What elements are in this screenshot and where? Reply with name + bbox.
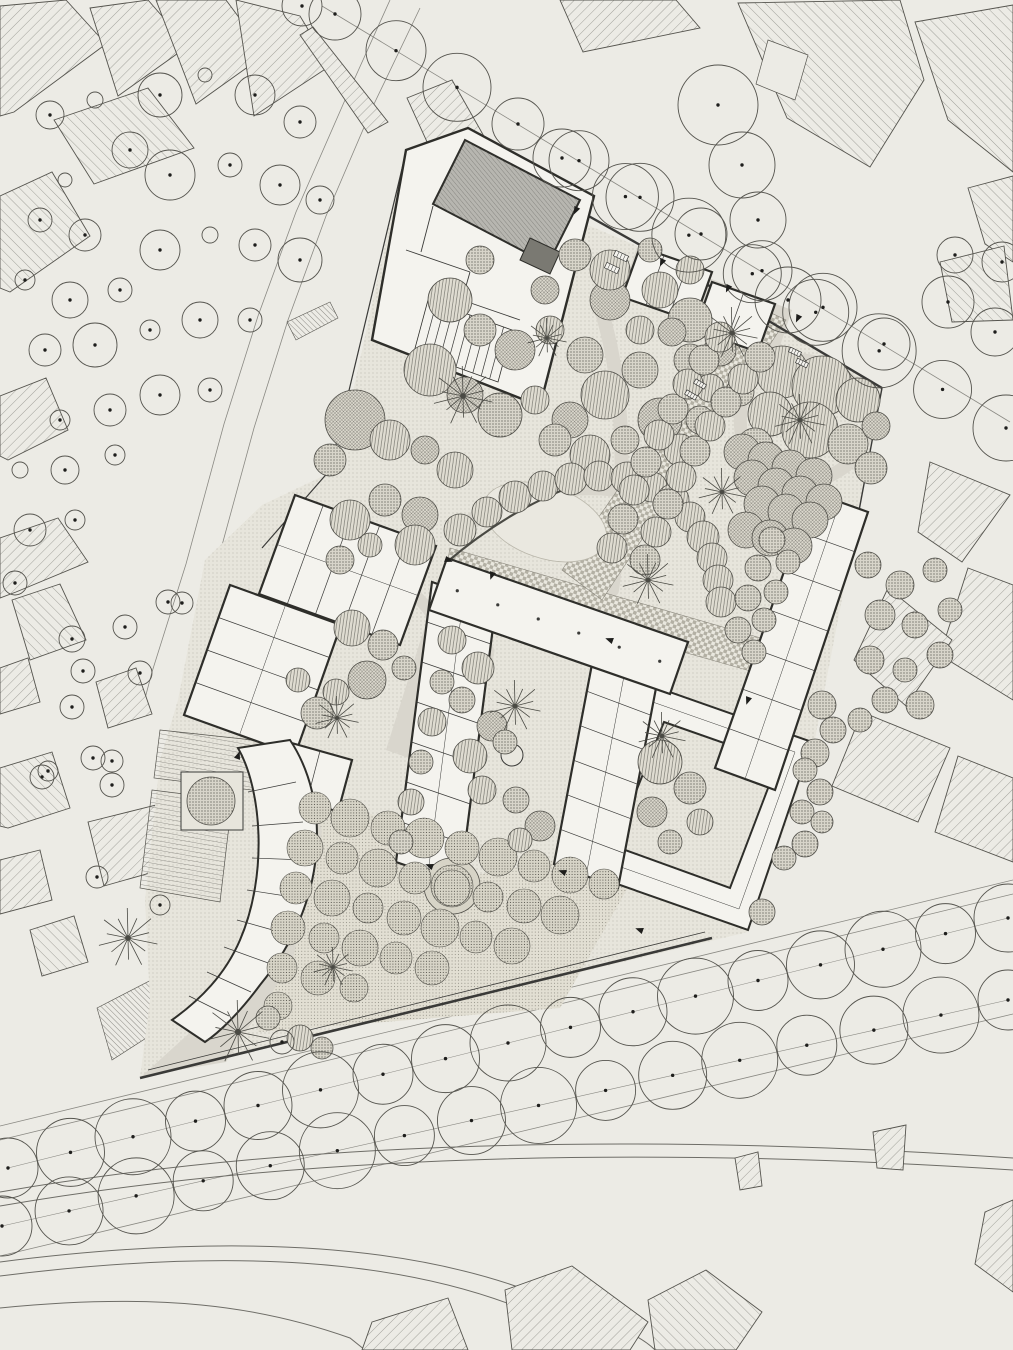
site-plan-page: [0, 0, 1013, 1350]
site-plan-canvas: [0, 0, 1013, 1350]
